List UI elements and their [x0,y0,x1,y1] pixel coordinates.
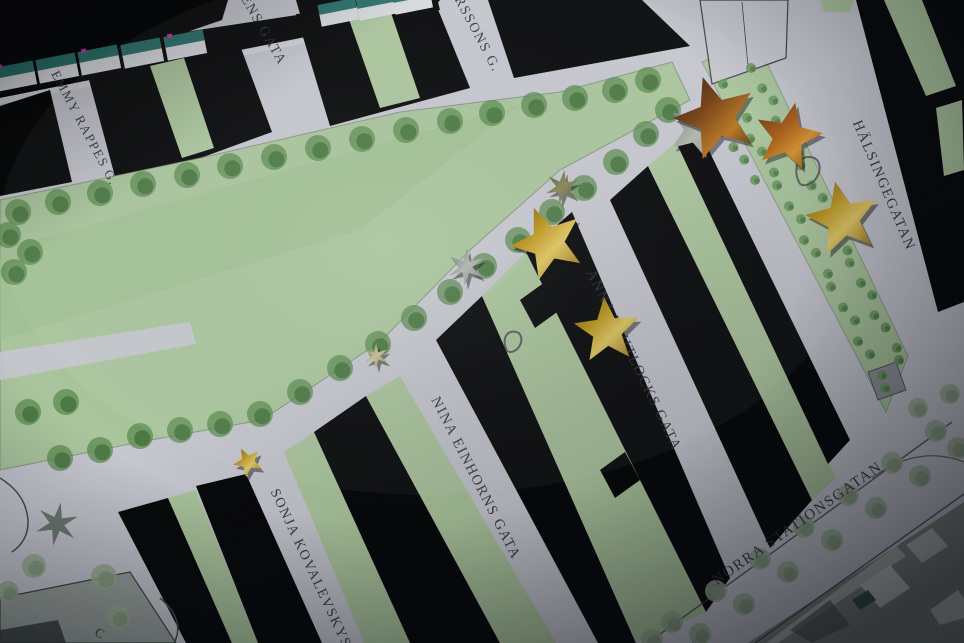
photographed-city-plan: EMMY RAPPES G. ÉNS GATA RSSONS G. NINA E… [0,0,964,643]
map-base [0,0,964,643]
map-photo: EMMY RAPPES G. ÉNS GATA RSSONS G. NINA E… [0,0,964,643]
